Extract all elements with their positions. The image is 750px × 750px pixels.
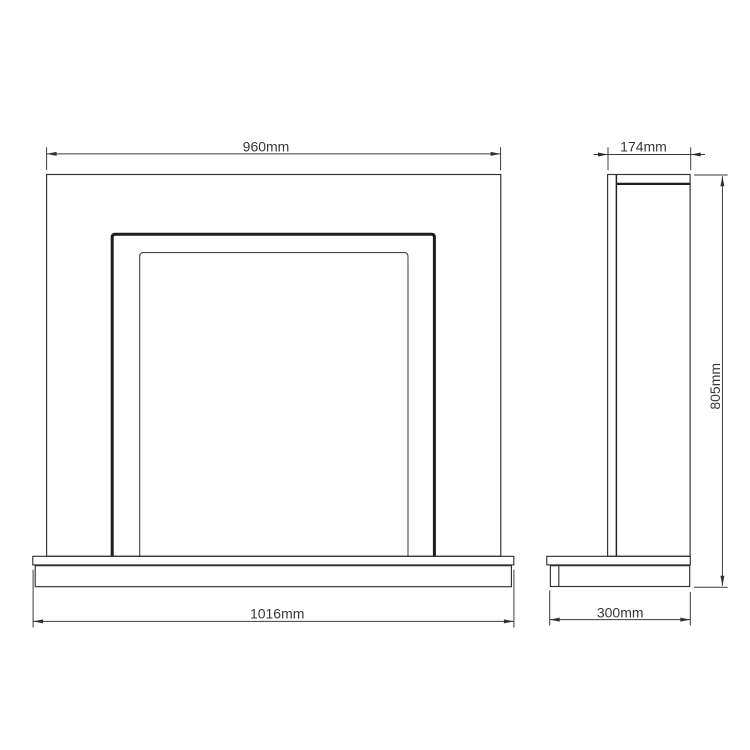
svg-text:805mm: 805mm [707, 363, 723, 410]
svg-text:1016mm: 1016mm [250, 606, 304, 622]
svg-text:300mm: 300mm [597, 604, 644, 620]
svg-text:174mm: 174mm [620, 139, 667, 155]
svg-text:960mm: 960mm [243, 139, 290, 155]
